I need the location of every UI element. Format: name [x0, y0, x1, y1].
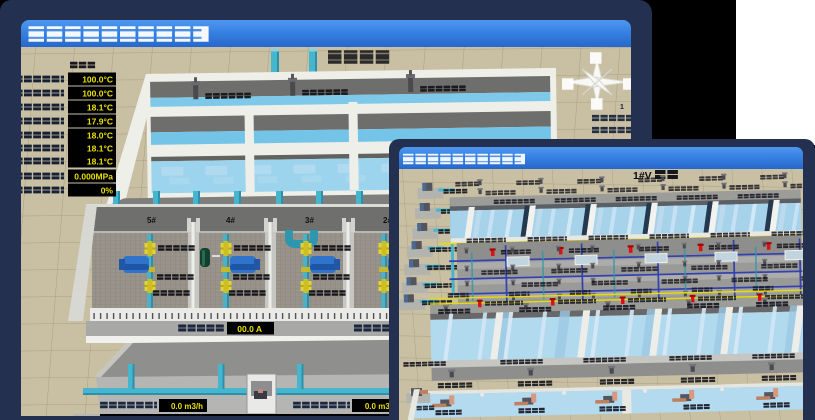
svg-text:00.0 A: 00.0 A [237, 324, 262, 334]
svg-text:0.000MPa: 0.000MPa [74, 172, 113, 182]
svg-text:100.0°C: 100.0°C [82, 75, 113, 85]
svg-text:18.1°C: 18.1°C [87, 157, 113, 167]
svg-text:1: 1 [620, 104, 624, 111]
svg-text:18.1°C: 18.1°C [87, 144, 113, 154]
svg-text:5#: 5# [147, 216, 156, 225]
svg-text:17.9°C: 17.9°C [87, 117, 113, 127]
svg-text:100.0°C: 100.0°C [82, 89, 113, 99]
svg-text:4#: 4# [226, 216, 235, 225]
svg-text:18.1°C: 18.1°C [87, 103, 113, 113]
svg-text:0%: 0% [101, 186, 114, 196]
svg-text:0.0 m3/h: 0.0 m3/h [171, 402, 203, 411]
svg-text:18.0°C: 18.0°C [87, 131, 113, 141]
svg-text:3#: 3# [305, 216, 314, 225]
